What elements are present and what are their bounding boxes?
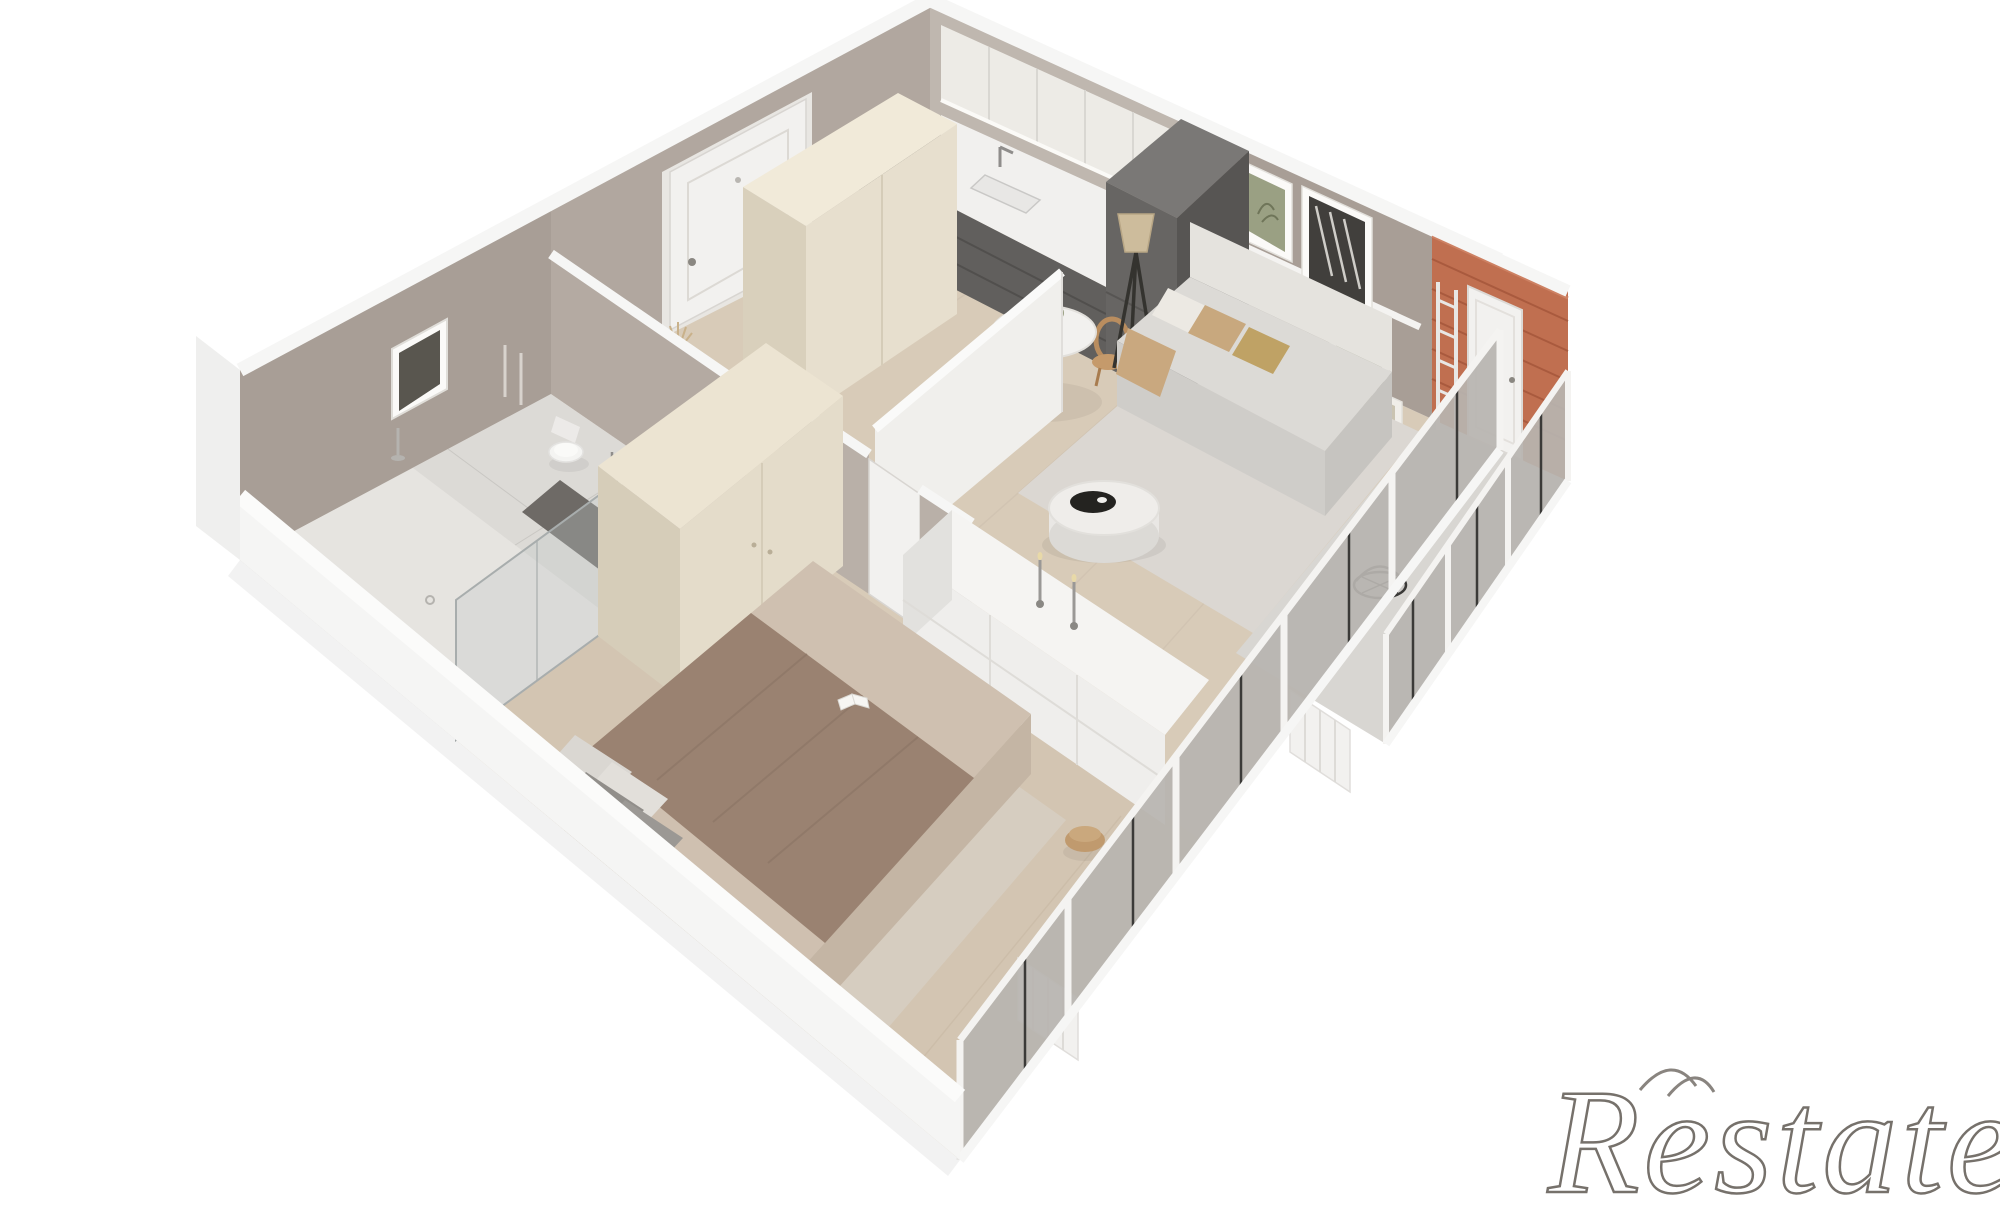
candle-flame — [1038, 552, 1043, 560]
coffee-table — [1042, 481, 1166, 563]
candle-holder — [1036, 600, 1044, 608]
toilet-seat — [554, 443, 578, 457]
pouf-top — [1069, 826, 1101, 842]
wardrobe-handle — [768, 550, 773, 555]
floor-plan-page: Restate — [0, 0, 2000, 1223]
black-tray — [1070, 491, 1116, 513]
watermark-text: Restate — [1547, 1059, 2000, 1223]
front-door-peephole — [735, 177, 741, 183]
tray-decor — [1097, 497, 1107, 503]
wardrobe-handle — [752, 543, 757, 548]
candle-flame — [1072, 574, 1077, 582]
balcony-door-handle — [1509, 377, 1515, 383]
lamp-shade — [1118, 214, 1154, 252]
watermark: Restate — [1547, 1059, 2000, 1223]
west-wall-return — [196, 336, 240, 560]
candle-holder — [1070, 622, 1078, 630]
front-door-handle — [688, 258, 696, 266]
floor-plan-render: Restate — [0, 0, 2000, 1223]
shower-rose — [391, 455, 405, 461]
